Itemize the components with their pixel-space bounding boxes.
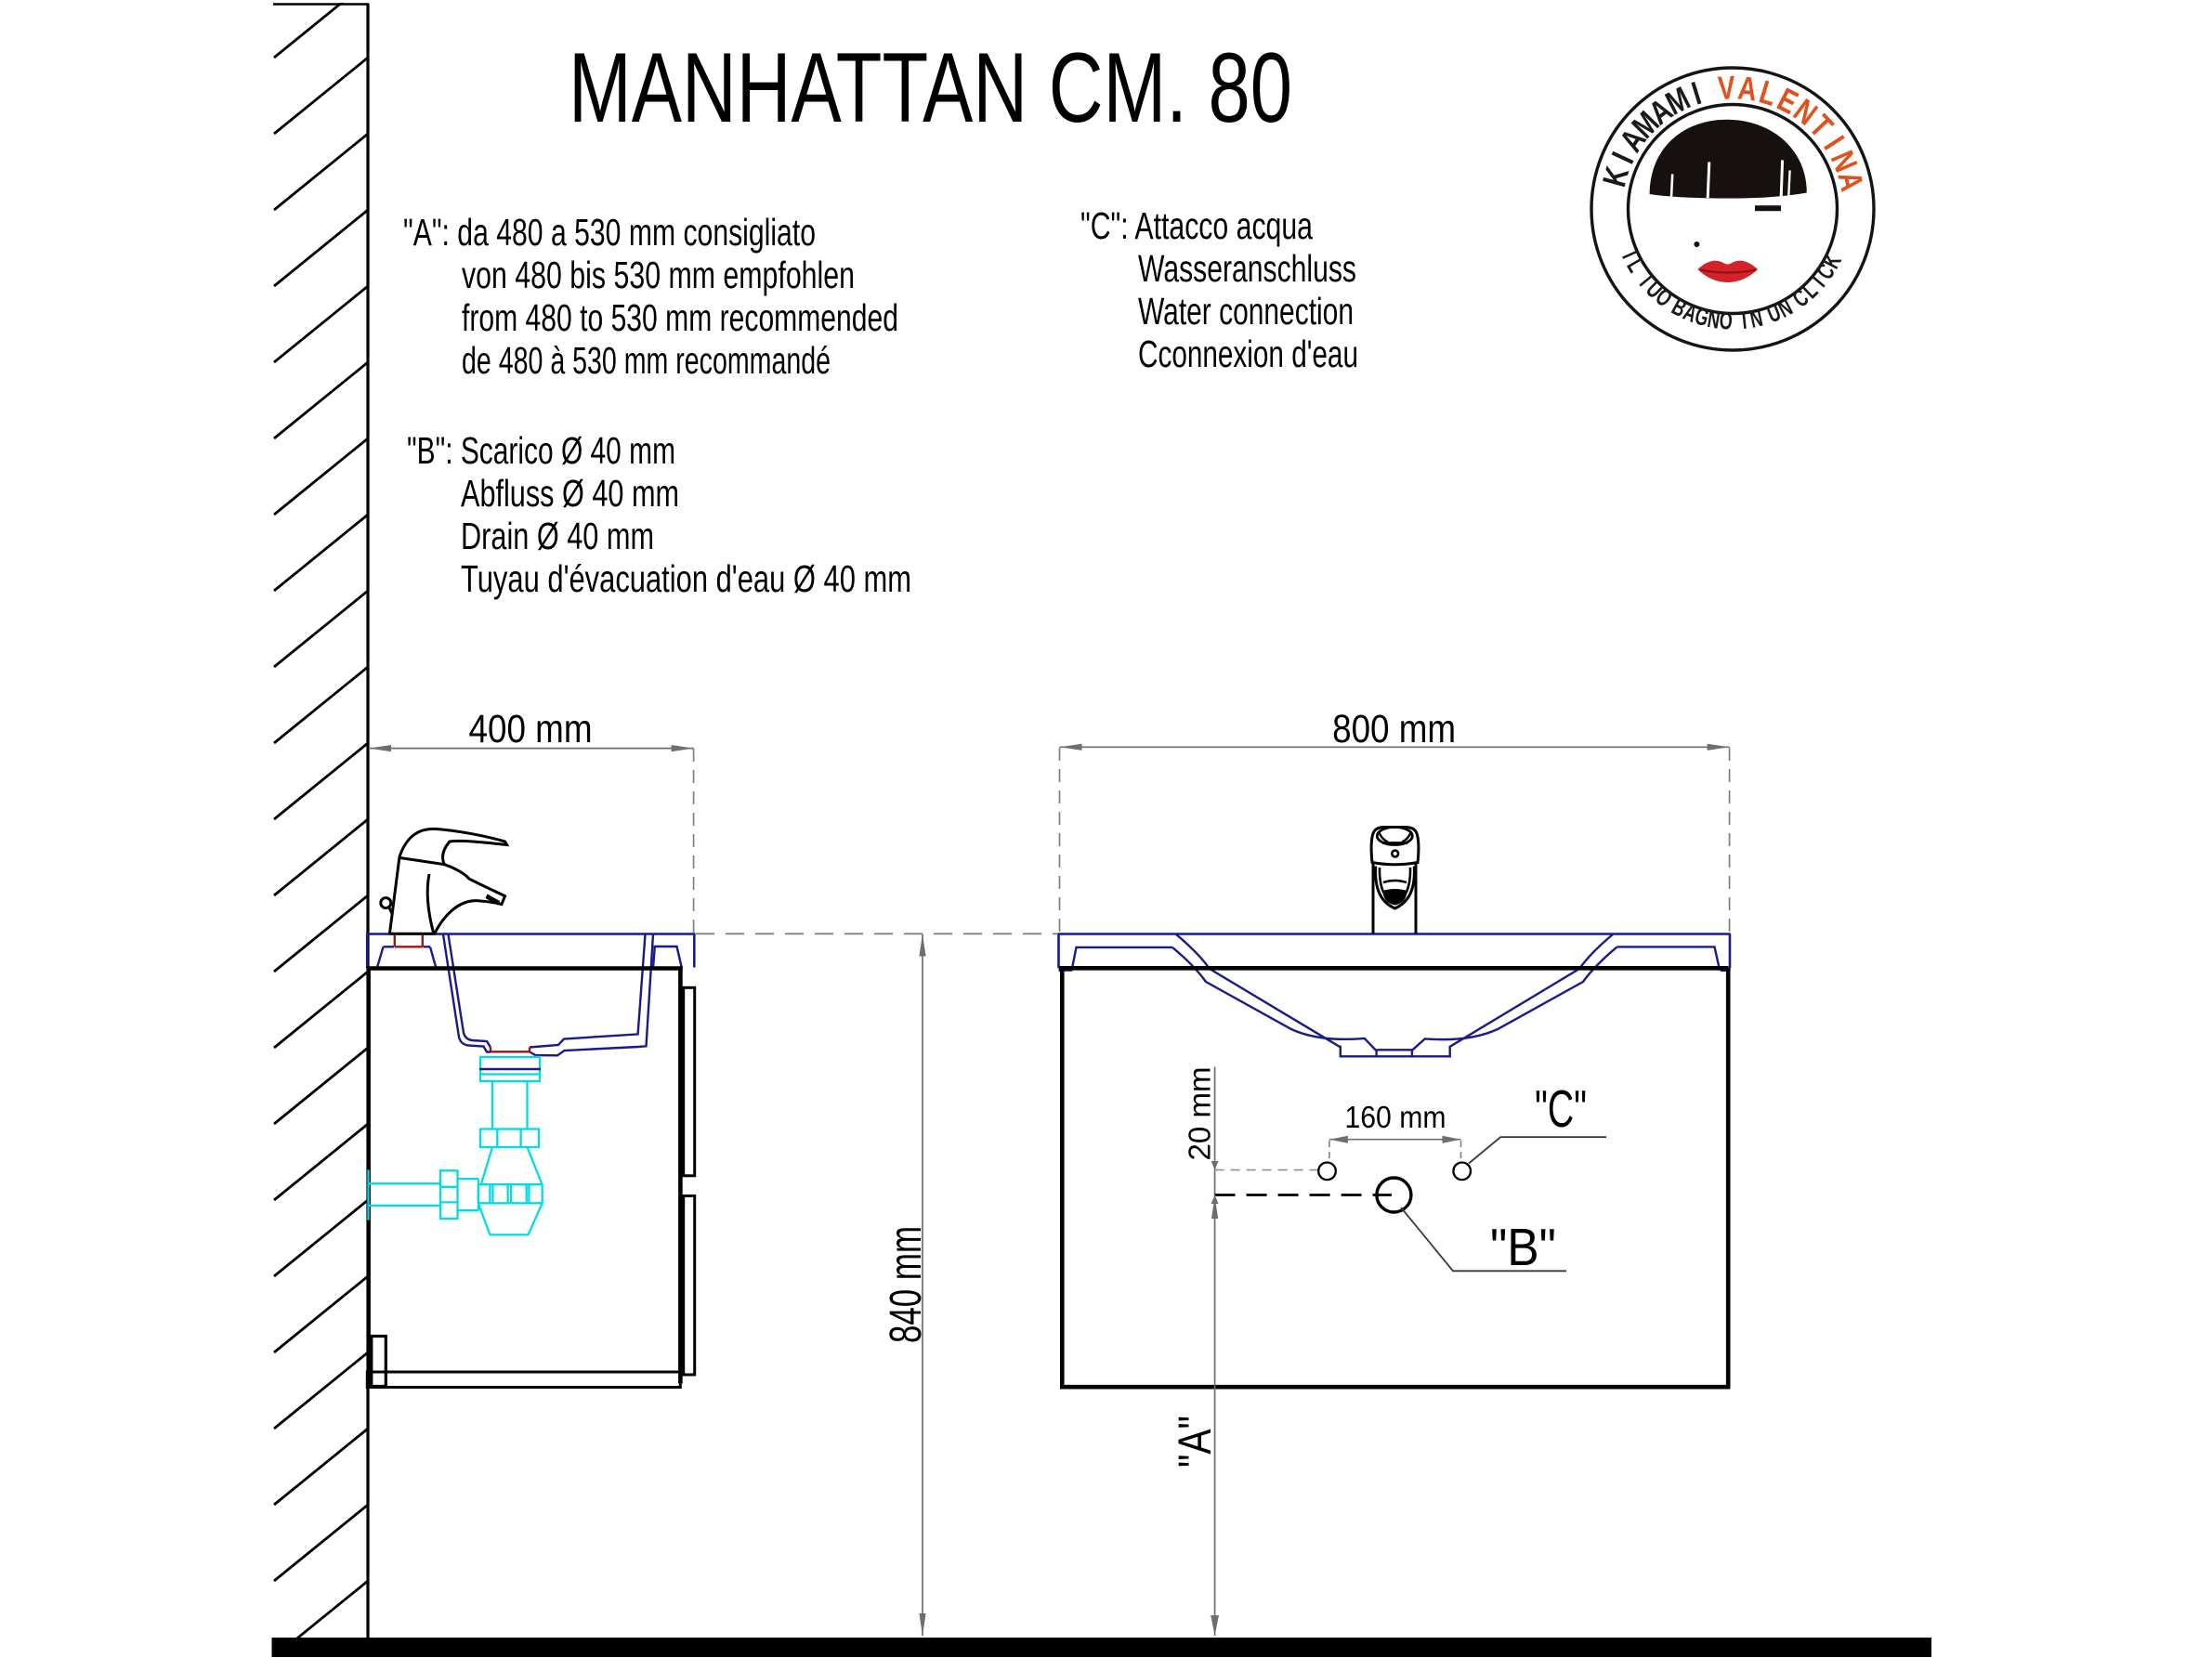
svg-text:800 mm: 800 mm <box>1332 707 1456 751</box>
svg-text:Drain Ø 40 mm: Drain Ø 40 mm <box>461 515 654 557</box>
svg-text:400 mm: 400 mm <box>469 707 593 751</box>
svg-text:160 mm: 160 mm <box>1345 1100 1446 1134</box>
svg-text:Abfluss Ø 40 mm: Abfluss Ø 40 mm <box>461 472 679 515</box>
svg-text:"B": Scarico Ø 40 mm: "B": Scarico Ø 40 mm <box>407 429 675 472</box>
svg-text:Wasseranschluss: Wasseranschluss <box>1138 247 1356 290</box>
svg-text:"C": Attacco acqua: "C": Attacco acqua <box>1080 204 1313 247</box>
svg-text:Tuyau d'évacuation d'eau Ø 40: Tuyau d'évacuation d'eau Ø 40 mm <box>461 557 911 600</box>
svg-text:"A": "A" <box>1169 1416 1221 1468</box>
svg-text:"B": "B" <box>1490 1218 1556 1277</box>
svg-text:840 mm: 840 mm <box>882 1226 931 1343</box>
svg-text:from 480 to 530 mm recommended: from 480 to 530 mm recommended <box>462 296 898 339</box>
svg-text:von 480 bis 530 mm empfohlen: von 480 bis 530 mm empfohlen <box>462 254 855 296</box>
svg-text:Water connection: Water connection <box>1138 290 1354 333</box>
svg-text:Cconnexion d'eau: Cconnexion d'eau <box>1138 333 1358 375</box>
svg-text:"A": da 480 a 530 mm consiglia: "A": da 480 a 530 mm consigliato <box>403 211 816 254</box>
svg-text:V: V <box>1717 69 1736 107</box>
svg-text:MANHATTAN CM. 80: MANHATTAN CM. 80 <box>569 32 1292 143</box>
svg-text:O: O <box>1719 306 1734 334</box>
svg-text:"C": "C" <box>1535 1079 1587 1139</box>
svg-text:20 mm: 20 mm <box>1183 1067 1217 1161</box>
svg-text:de 480 à 530 mm recommandé: de 480 à 530 mm recommandé <box>462 339 831 382</box>
